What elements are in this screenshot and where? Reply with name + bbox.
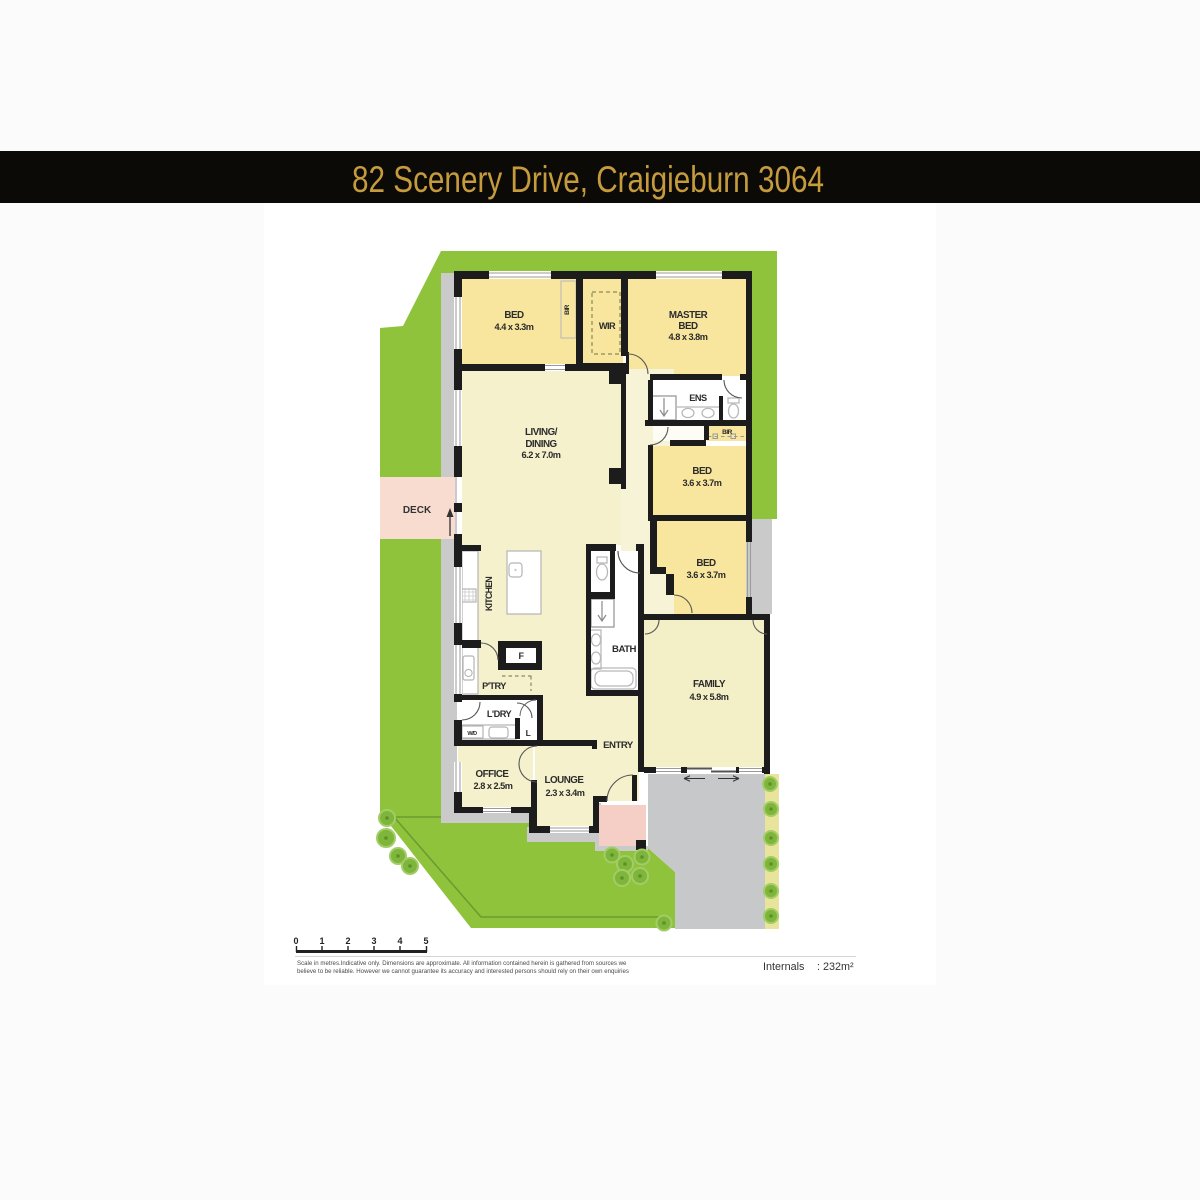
- svg-text:4: 4: [397, 936, 402, 946]
- svg-text:W/D: W/D: [467, 731, 477, 737]
- svg-text:L: L: [526, 728, 531, 738]
- svg-text:MASTER: MASTER: [669, 310, 708, 321]
- svg-text:ENS: ENS: [689, 393, 707, 403]
- svg-text:KITCHEN: KITCHEN: [484, 577, 494, 612]
- svg-text:2: 2: [345, 936, 350, 946]
- svg-text:BED: BED: [696, 558, 716, 569]
- svg-text:4.8 x 3.8m: 4.8 x 3.8m: [669, 332, 708, 342]
- svg-text:DINING: DINING: [525, 439, 557, 450]
- svg-text:4.4 x 3.3m: 4.4 x 3.3m: [495, 322, 534, 332]
- svg-text:BED: BED: [692, 466, 712, 477]
- svg-text:P'TRY: P'TRY: [482, 681, 506, 691]
- svg-text:L'DRY: L'DRY: [487, 709, 512, 719]
- svg-text:BED: BED: [678, 321, 698, 332]
- svg-text:2.3 x 3.4m: 2.3 x 3.4m: [546, 788, 585, 798]
- svg-text:6.2 x 7.0m: 6.2 x 7.0m: [522, 450, 561, 460]
- svg-text:BATH: BATH: [612, 644, 637, 655]
- svg-text:FAMILY: FAMILY: [693, 679, 726, 690]
- svg-text:OFFICE: OFFICE: [476, 769, 510, 780]
- svg-text:0: 0: [293, 936, 298, 946]
- svg-text:WIR: WIR: [599, 321, 616, 331]
- svg-text:3: 3: [371, 936, 376, 946]
- svg-text:4.9 x 5.8m: 4.9 x 5.8m: [690, 692, 729, 702]
- svg-text:1: 1: [319, 936, 324, 946]
- svg-text:3.6 x 3.7m: 3.6 x 3.7m: [687, 570, 726, 580]
- svg-text:2.8 x 2.5m: 2.8 x 2.5m: [474, 781, 513, 791]
- svg-text:82 Scenery Drive, Craigieburn: 82 Scenery Drive, Craigieburn 3064: [352, 159, 824, 200]
- svg-text:BIR: BIR: [722, 429, 733, 436]
- svg-text:Scale in metres.Indicative onl: Scale in metres.Indicative only. Dimensi…: [297, 960, 627, 967]
- svg-text:BED: BED: [504, 310, 524, 321]
- svg-text:ENTRY: ENTRY: [603, 740, 634, 751]
- svg-text:: 232m²: : 232m²: [817, 961, 854, 973]
- svg-text:5: 5: [423, 936, 428, 946]
- svg-text:DECK: DECK: [403, 505, 432, 516]
- svg-text:3.6 x 3.7m: 3.6 x 3.7m: [683, 478, 722, 488]
- svg-text:LOUNGE: LOUNGE: [545, 775, 585, 786]
- svg-text:LIVING/: LIVING/: [525, 427, 558, 438]
- svg-text:BIR: BIR: [564, 304, 571, 315]
- svg-text:believe to be reliable. Howeve: believe to be reliable. However we canno…: [297, 968, 629, 975]
- svg-text:Internals: Internals: [763, 961, 805, 973]
